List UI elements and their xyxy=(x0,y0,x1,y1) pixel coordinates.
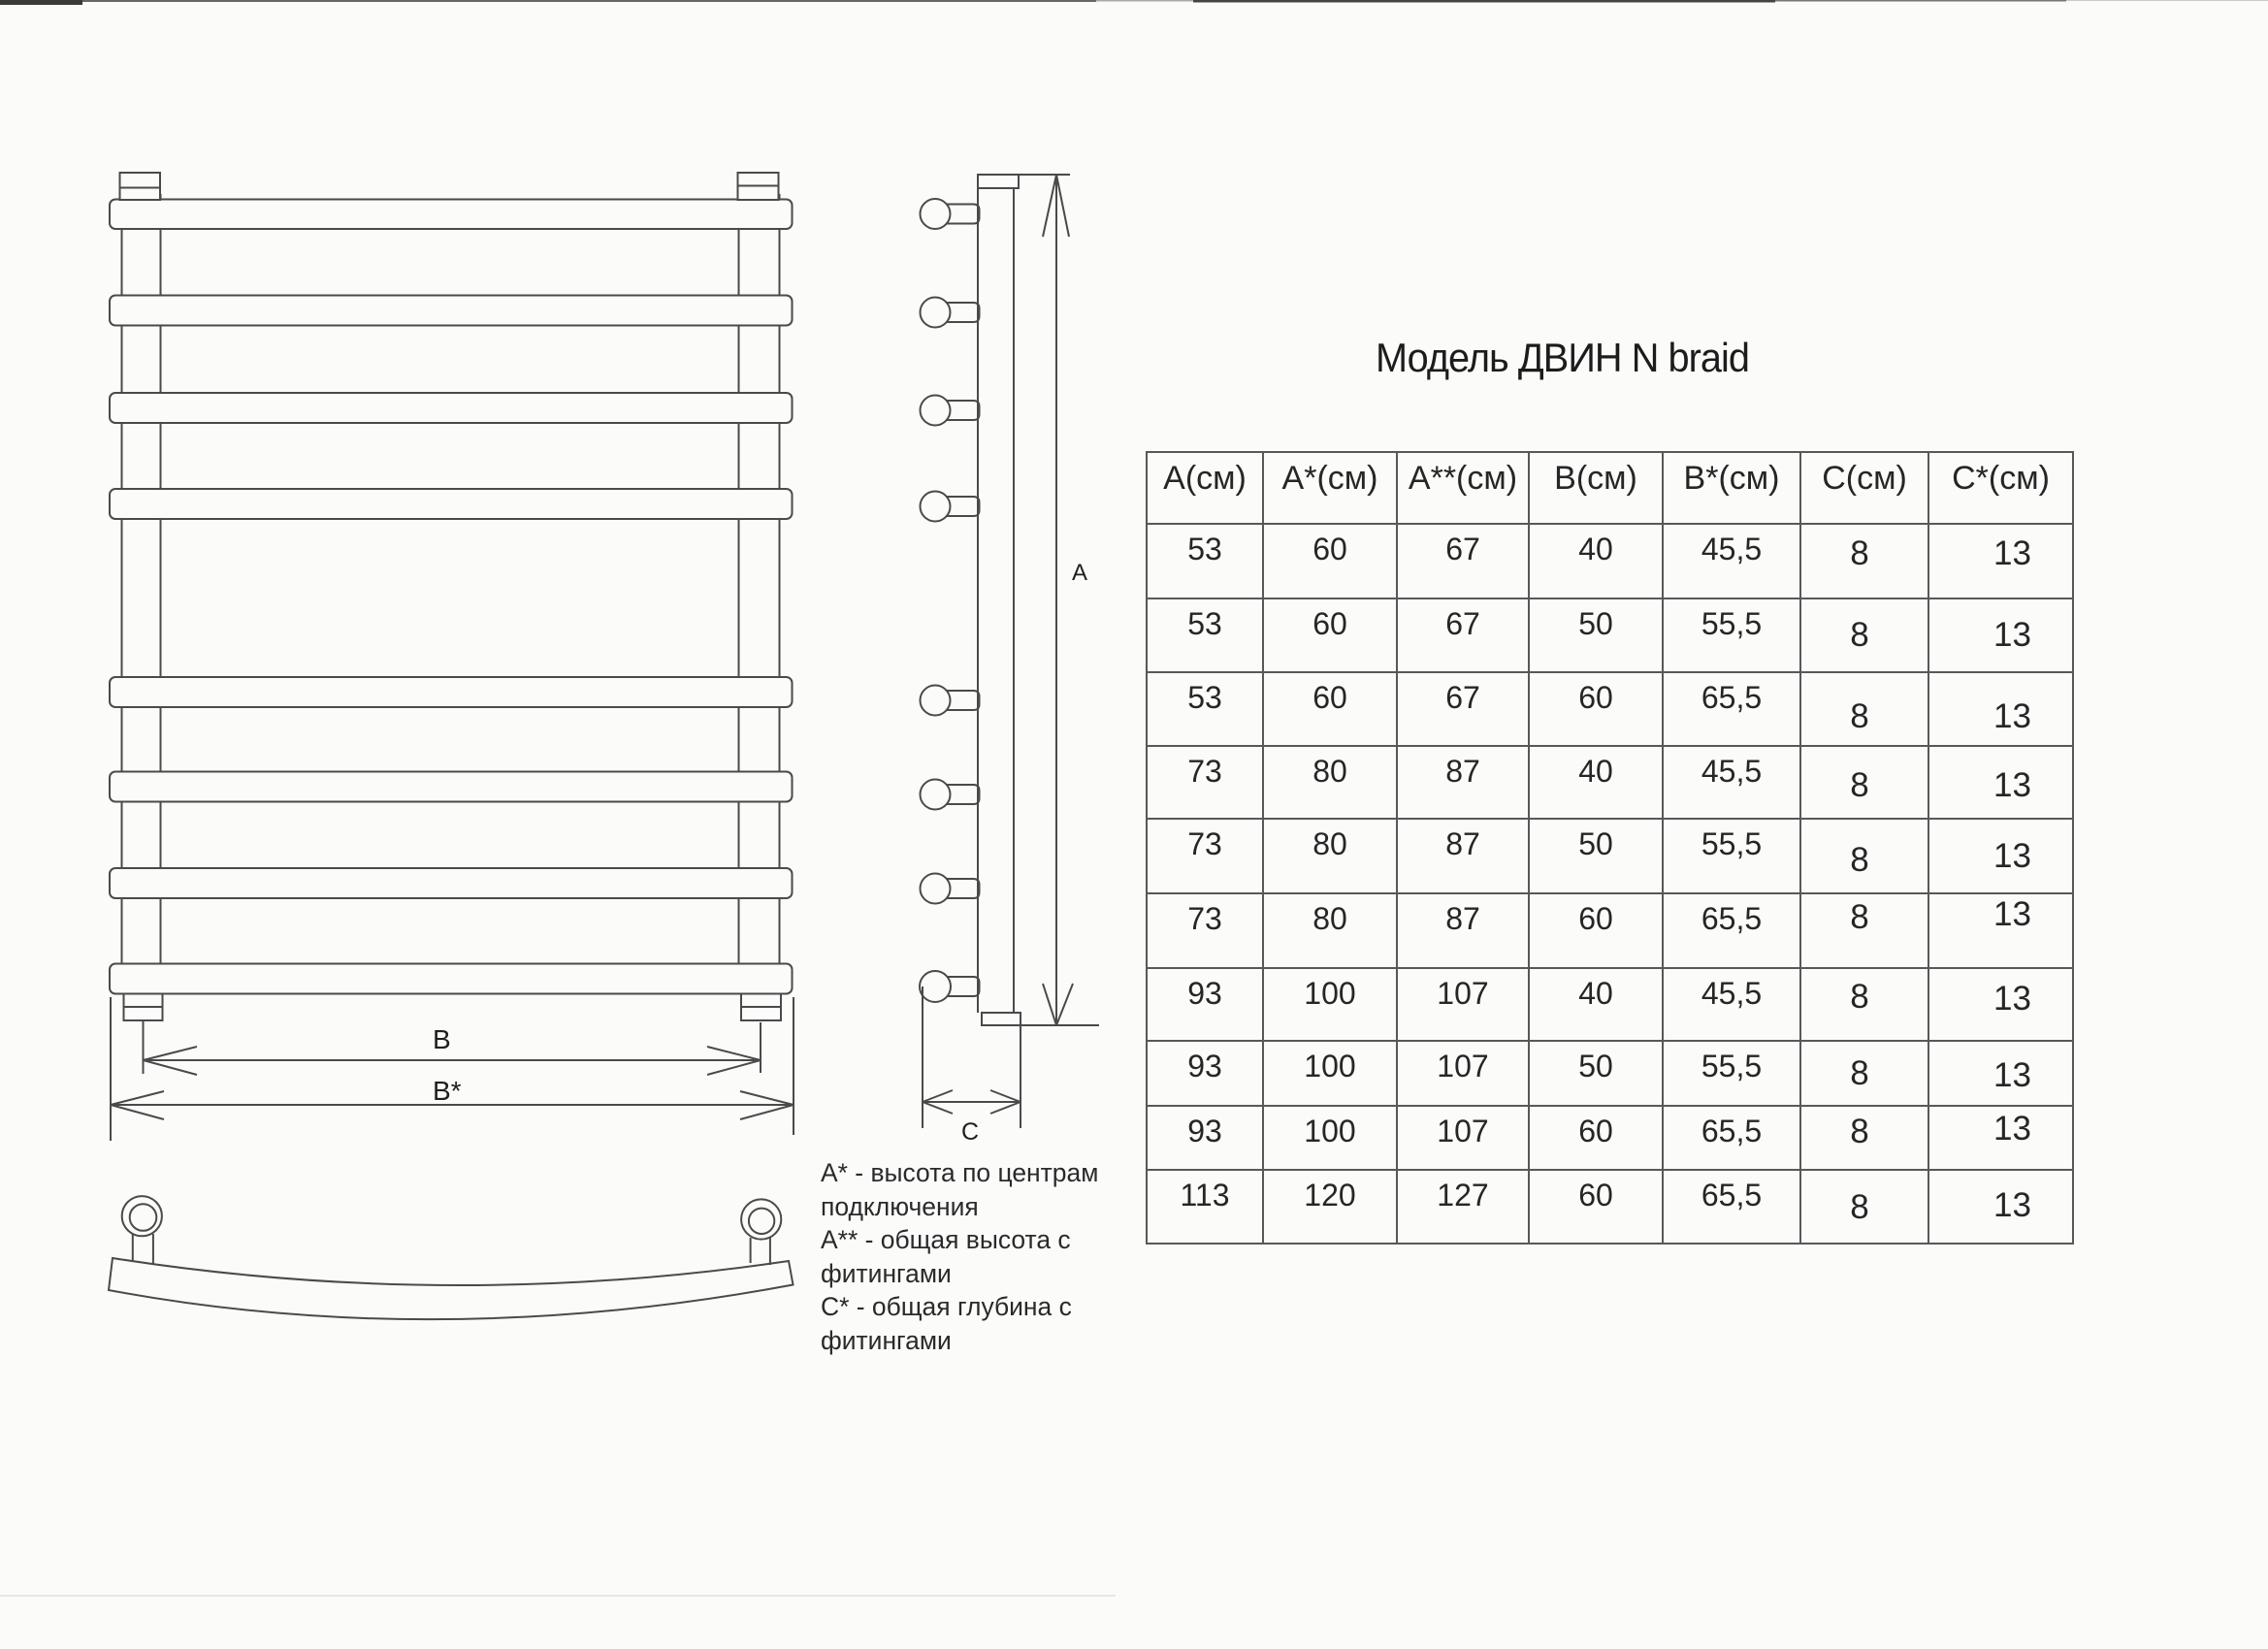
svg-text:А: А xyxy=(1072,560,1087,586)
svg-text:В: В xyxy=(433,1024,451,1054)
svg-text:С: С xyxy=(961,1118,979,1146)
svg-text:В*: В* xyxy=(433,1076,462,1106)
